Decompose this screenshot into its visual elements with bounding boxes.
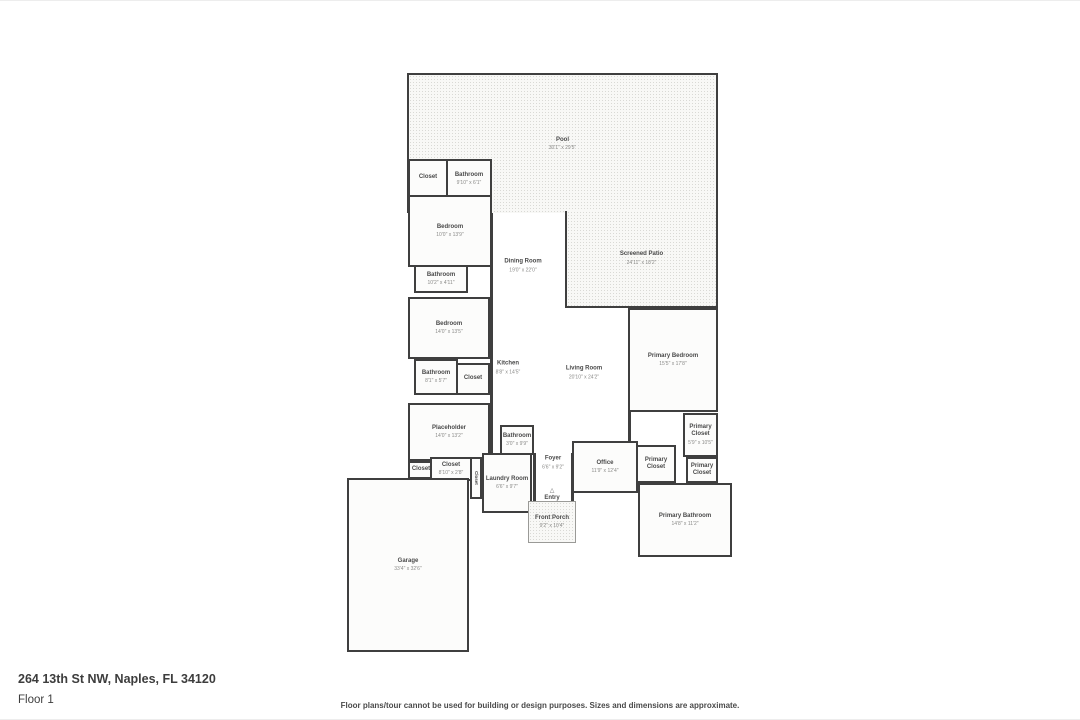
room-name-label: Primary Bathroom bbox=[659, 513, 711, 521]
room-dims-label: 24'11" x 18'2" bbox=[627, 260, 657, 267]
room-foyer: Foyer6'6" x 9'2" bbox=[542, 456, 564, 471]
room-name-label: Bedroom bbox=[437, 224, 463, 232]
room-living-room: Living Room20'10" x 24'2" bbox=[566, 366, 602, 381]
room-dims-label: 11'9" x 12'4" bbox=[591, 468, 618, 475]
room-dims-label: 14'0" x 13'5" bbox=[435, 329, 462, 336]
room-name-label: Closet bbox=[442, 462, 460, 470]
room-dims-label: 9'10" x 6'1" bbox=[457, 180, 482, 187]
room-closet-top: Closet bbox=[408, 159, 448, 197]
room-bedroom-1: Bedroom10'0" x 13'9" bbox=[408, 195, 492, 267]
room-name-label: Closet bbox=[419, 174, 437, 182]
room-primary-bathroom: Primary Bathroom14'8" x 11'2" bbox=[638, 483, 732, 557]
room-kitchen: Kitchen8'8" x 14'5" bbox=[496, 361, 521, 376]
room-placeholder: Placeholder14'0" x 13'2" bbox=[408, 403, 490, 461]
room-dims-label: 15'5" x 17'8" bbox=[659, 361, 686, 368]
room-name-label: Bathroom bbox=[503, 433, 531, 441]
room-laundry-room: Laundry Room6'6" x 9'7" bbox=[482, 453, 532, 513]
room-name-label: Bathroom bbox=[427, 272, 455, 280]
room-dims-label: 8'8" x 14'5" bbox=[496, 369, 521, 376]
room-dims-label: 10'2" x 4'11" bbox=[427, 280, 454, 287]
wall-segment bbox=[533, 453, 536, 503]
room-name-label: Primary Bedroom bbox=[648, 353, 698, 361]
room-name-label: Bathroom bbox=[422, 370, 450, 378]
room-dims-label: 33'4" x 32'6" bbox=[394, 566, 421, 573]
room-primary-bedroom: Primary Bedroom15'5" x 17'8" bbox=[628, 308, 718, 412]
entry-direction-icon: △ bbox=[550, 488, 555, 494]
room-primary-closet-2: Primary Closet bbox=[636, 445, 676, 483]
room-name-label: Garage bbox=[398, 558, 419, 566]
room-primary-closet-3: Primary Closet bbox=[686, 457, 718, 483]
room-name-label: Closet bbox=[412, 466, 430, 474]
room-bathroom-4: Bathroom3'0" x 9'9" bbox=[500, 425, 534, 455]
room-entry: △Entry bbox=[544, 488, 559, 503]
room-dims-label: 9'2" x 10'4" bbox=[540, 523, 565, 530]
room-dims-label: 8'1" x 5'7" bbox=[425, 378, 447, 385]
room-dims-label: 6'6" x 9'7" bbox=[496, 484, 518, 491]
room-name-label: Primary Closet bbox=[638, 457, 674, 472]
room-name-label: Foyer bbox=[545, 456, 561, 464]
room-dims-label: 3'0" x 9'9" bbox=[506, 441, 528, 448]
room-name-label: Pool bbox=[556, 137, 569, 145]
room-name-label: Closet bbox=[473, 471, 479, 485]
room-bathroom-top: Bathroom9'10" x 6'1" bbox=[446, 159, 492, 199]
room-dims-label: 19'0" x 22'0" bbox=[509, 267, 536, 274]
room-name-label: Dining Room bbox=[504, 259, 541, 267]
room-dims-label: 14'8" x 11'2" bbox=[671, 521, 698, 528]
room-dining-room: Dining Room19'0" x 22'0" bbox=[504, 259, 541, 274]
room-name-label: Office bbox=[596, 460, 613, 468]
room-closet-2: Closet bbox=[456, 363, 490, 395]
room-bedroom-2: Bedroom14'0" x 13'5" bbox=[408, 297, 490, 359]
room-office: Office11'9" x 12'4" bbox=[572, 441, 638, 493]
room-name-label: Placeholder bbox=[432, 425, 466, 433]
room-name-label: Entry bbox=[544, 495, 559, 503]
room-dims-label: 5'9" x 10'5" bbox=[688, 440, 713, 447]
room-name-label: Bathroom bbox=[455, 172, 483, 180]
room-dims-label: 10'0" x 13'9" bbox=[436, 232, 463, 239]
room-screened-patio: Screened Patio24'11" x 18'2" bbox=[565, 211, 718, 308]
room-dims-label: 8'10" x 2'8" bbox=[439, 470, 464, 477]
room-name-label: Living Room bbox=[566, 366, 602, 374]
room-dims-label: 14'0" x 13'2" bbox=[435, 433, 462, 440]
room-name-label: Front Porch bbox=[535, 515, 569, 523]
room-name-label: Primary Closet bbox=[688, 463, 716, 478]
disclaimer-text: Floor plans/tour cannot be used for buil… bbox=[0, 701, 1080, 710]
room-dims-label: 30'1" x 29'5" bbox=[549, 145, 576, 152]
room-name-label: Primary Closet bbox=[685, 424, 716, 439]
room-bathroom-3: Bathroom8'1" x 5'7" bbox=[414, 359, 458, 395]
floor-plan: Pool30'1" x 29'5"Screened Patio24'11" x … bbox=[0, 1, 1080, 719]
room-front-porch: Front Porch9'2" x 10'4" bbox=[528, 501, 576, 543]
room-name-label: Closet bbox=[464, 375, 482, 383]
address-label: 264 13th St NW, Naples, FL 34120 bbox=[18, 672, 216, 686]
room-name-label: Bedroom bbox=[436, 321, 462, 329]
floor-plan-canvas: Pool30'1" x 29'5"Screened Patio24'11" x … bbox=[0, 0, 1080, 720]
room-garage: Garage33'4" x 32'6" bbox=[347, 478, 469, 652]
room-closet-5: Closet bbox=[470, 457, 482, 499]
room-name-label: Kitchen bbox=[497, 361, 519, 369]
room-primary-closet-1: Primary Closet5'9" x 10'5" bbox=[683, 413, 718, 457]
room-bathroom-2: Bathroom10'2" x 4'11" bbox=[414, 265, 468, 293]
room-dims-label: 6'6" x 9'2" bbox=[542, 464, 564, 471]
room-name-label: Laundry Room bbox=[486, 476, 528, 484]
room-name-label: Screened Patio bbox=[620, 251, 663, 259]
room-dims-label: 20'10" x 24'2" bbox=[569, 374, 599, 381]
